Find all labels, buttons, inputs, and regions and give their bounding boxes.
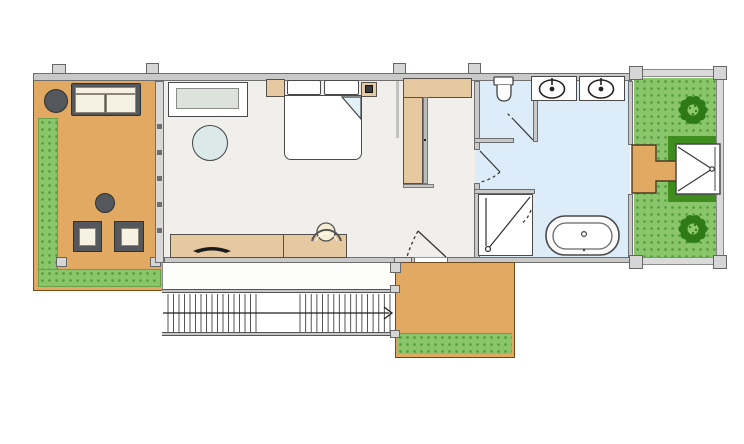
wardrobe-return-wall [403,184,434,188]
walkway [162,263,400,290]
bed-pillow [324,80,359,95]
double-bed [284,95,362,160]
shower-tray [478,194,533,256]
deck-post [390,262,401,273]
garden-corner-post [713,255,727,269]
outdoor-sofa [71,83,141,116]
sink-counter [579,76,625,101]
deck-post [390,285,400,293]
floor-plan-canvas [0,0,744,444]
deck-post [56,257,67,267]
chair-cushion [121,228,139,246]
garden-hedge-frame [668,136,720,202]
wardrobe-top [403,78,472,98]
window-wall [155,81,164,263]
landing-grass-strip [397,333,512,354]
bedside-lamp [365,85,373,93]
hallway-stub-wall [396,81,399,138]
round-side-table [44,89,68,113]
wardrobe-door-knob [424,139,426,141]
sideboard-divider [283,235,284,257]
garden-right-wall [716,79,724,257]
garden-wall-upper [628,81,633,145]
wall-pilaster [52,64,66,74]
outdoor-chair [73,221,102,252]
landing-deck [395,262,515,358]
window-mullion-tick [157,124,162,129]
window-mullion-tick [157,228,162,233]
garden-corner-post [629,66,643,80]
garden-corner-post [629,255,643,269]
terrace-grass-left [38,118,58,287]
console-cabinet [168,82,248,117]
sideboard-desk [170,234,347,258]
deck-post [390,330,400,338]
round-rug [192,125,228,161]
wall-pilaster [146,63,159,74]
sink-counter [531,76,577,101]
nightstand-left [266,79,285,97]
garden-top-wall [641,69,716,77]
wc-bottom-wall [474,138,514,143]
sofa-cushion [106,94,136,113]
sofa-cushion [75,94,105,113]
garden-wall-lower [628,194,633,258]
round-coffee-table [95,193,115,213]
stair-top-rail [162,289,395,293]
sofa-backrest [75,87,136,94]
wall-pilaster [393,63,406,74]
chair-cushion [79,228,96,246]
window-mullion-tick [157,150,162,155]
outdoor-chair [114,221,144,252]
terrace-grass-bottom [38,269,161,287]
garden-bottom-wall [641,257,716,265]
entry-threshold [415,257,447,258]
bed-pillow [287,80,321,95]
console-top [176,88,239,109]
wall-pilaster [468,63,481,74]
window-mullion-tick [157,176,162,181]
garden-corner-post [713,66,727,80]
nightstand-right [361,82,377,97]
staircase [162,290,395,336]
window-mullion-tick [157,202,162,207]
stair-bottom-rail [162,332,395,336]
wardrobe-side [403,97,423,184]
